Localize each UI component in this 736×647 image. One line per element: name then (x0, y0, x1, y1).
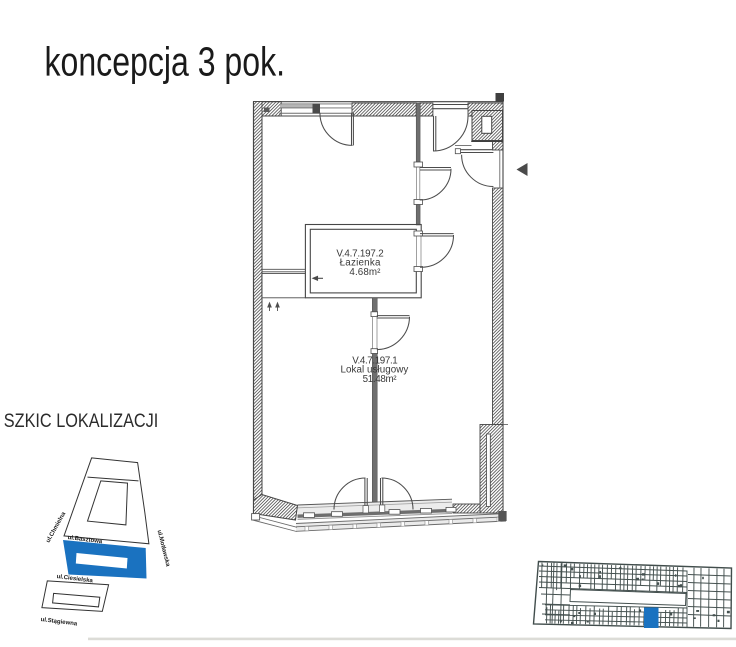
svg-text:4.68m²: 4.68m² (349, 267, 381, 278)
svg-text:koncepcja 3 pok.: koncepcja 3 pok. (45, 39, 286, 85)
svg-text:SZKIC LOKALIZACJI: SZKIC LOKALIZACJI (4, 411, 159, 432)
svg-text:51.48m²: 51.48m² (363, 374, 398, 385)
